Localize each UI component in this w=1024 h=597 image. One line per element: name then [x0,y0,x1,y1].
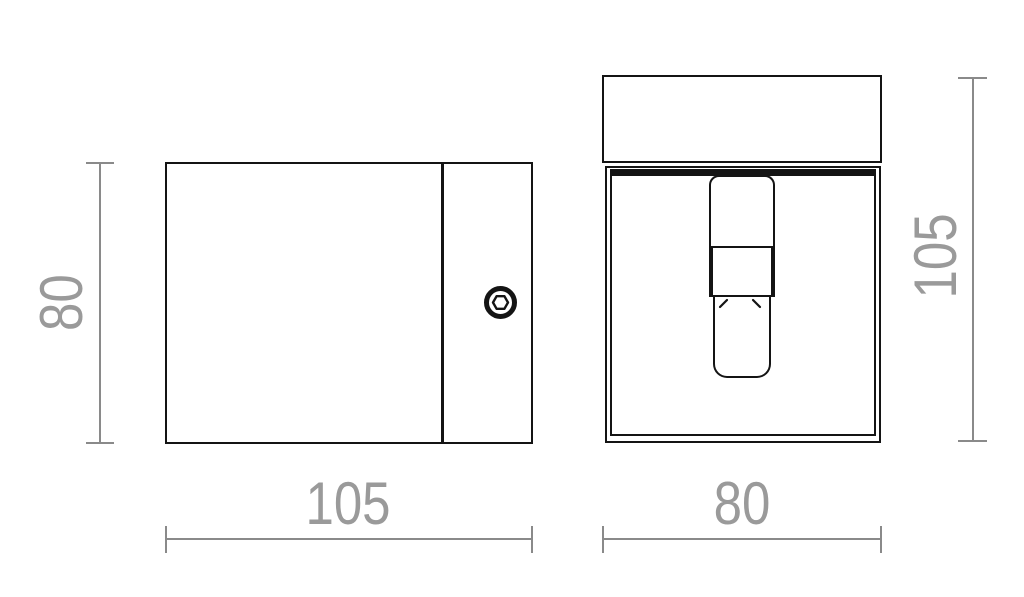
side-view-outline [165,162,533,444]
dimension-value: 105 [866,186,1006,326]
dimension-value: 80 [0,233,132,373]
dimension-tick [880,526,882,553]
dimension-value: 80 [709,474,776,534]
dimension-tick [602,526,604,553]
dimension-tick [531,526,533,553]
dimension-drawing: 80 105 80 105 [0,0,1024,597]
front-view-bracket-box [711,246,773,297]
dimension-tick [958,77,987,79]
dimension-tick [86,442,114,444]
dimension-tick [86,162,114,164]
side-view-divider-line [441,164,444,442]
dimension-tick [165,526,167,553]
front-view-bracket-lower [713,297,771,378]
hex-socket-screw-icon [484,286,517,319]
dimension-tick [958,440,987,442]
dimension-line [165,538,533,540]
front-view-top-cap [602,75,882,163]
dimension-value: 105 [298,474,398,534]
dimension-line [602,538,882,540]
